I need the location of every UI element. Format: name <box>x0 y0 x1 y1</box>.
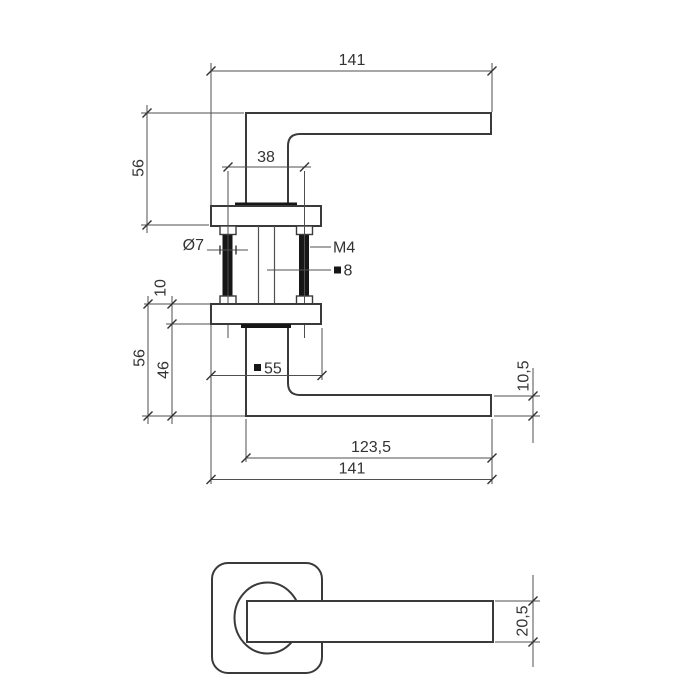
lever-bar-front <box>247 601 493 642</box>
dimension-lines <box>141 63 540 667</box>
dim-label-38: 38 <box>257 149 275 166</box>
dim-label-56-bottom: 56 <box>132 349 149 367</box>
dim-label-55: 55 <box>264 361 282 378</box>
dim-label-141-bottom: 141 <box>339 461 366 478</box>
dim-label-46: 46 <box>156 361 173 379</box>
technical-drawing-canvas: 141 56 38 Ø7 M4 8 10 56 46 55 10,5 123,5… <box>0 0 700 700</box>
dim-label-10-5: 10,5 <box>516 360 533 391</box>
lever-outline-top <box>246 113 491 204</box>
dimension-ticks <box>143 67 538 647</box>
lever-outline-bottom <box>246 328 491 416</box>
front-view <box>212 563 493 673</box>
dim-label-20-5: 20,5 <box>515 605 532 636</box>
rosette-bottom <box>211 304 321 324</box>
top-lever-view <box>211 113 491 226</box>
bottom-lever-view <box>211 304 491 416</box>
technical-drawing-page: 141 56 38 Ø7 M4 8 10 56 46 55 10,5 123,5… <box>0 0 700 700</box>
dim-label-123-5: 123,5 <box>351 439 391 456</box>
dim-label-thread: M4 <box>333 240 355 257</box>
dim-label-141-top: 141 <box>339 52 366 69</box>
dim-label-bolt-hole: Ø7 <box>183 237 204 254</box>
square-section-icon <box>254 364 261 371</box>
neck-collar-bottom <box>241 324 291 328</box>
square-section-icon <box>334 267 341 274</box>
dim-label-56-top: 56 <box>131 159 148 177</box>
dim-label-spindle: 8 <box>344 263 353 280</box>
dim-label-10: 10 <box>153 279 170 297</box>
dimension-labels: 141 56 38 Ø7 M4 8 10 56 46 55 10,5 123,5… <box>131 52 533 637</box>
